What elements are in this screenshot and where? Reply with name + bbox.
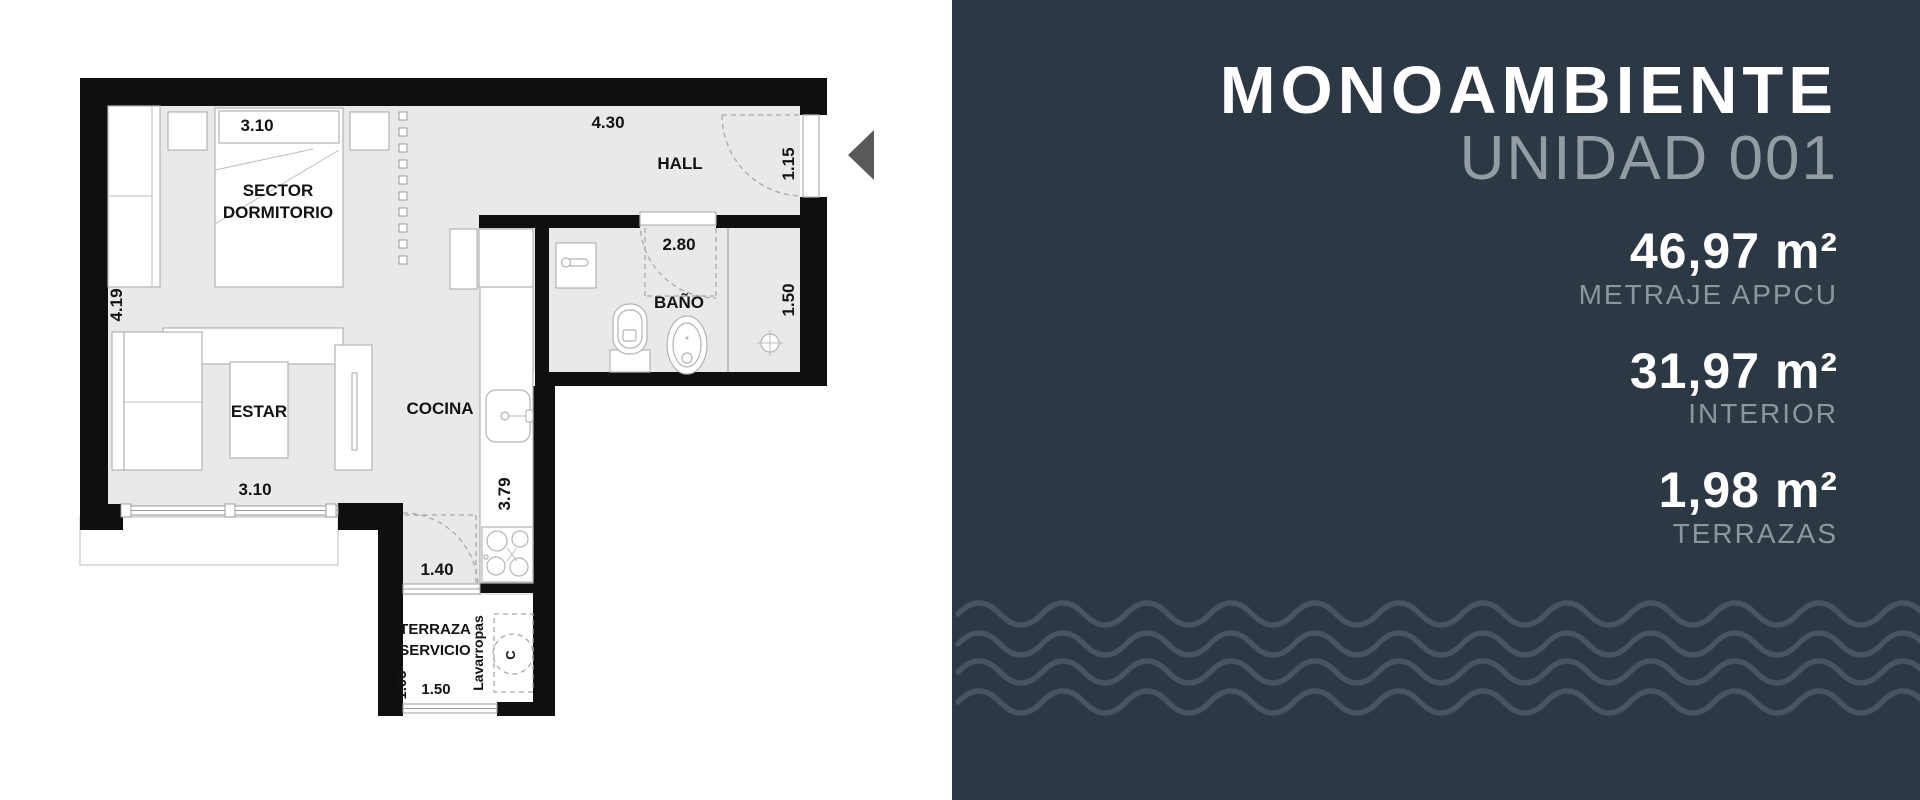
label-terraza-1: TERRAZA (399, 621, 471, 638)
wardrobe (108, 106, 160, 287)
label-bano: BAÑO (654, 292, 704, 312)
dim-dorm-width: 3.10 (240, 116, 273, 135)
wave-decoration (952, 596, 1920, 726)
dim-hall-width: 4.30 (591, 113, 624, 132)
metric-interior-value: 31,97 m² (992, 345, 1838, 398)
label-hall: HALL (657, 154, 702, 173)
dim-estar-width: 3.10 (238, 480, 271, 499)
entry-arrow-icon (848, 130, 874, 180)
metric-terraces-value: 1,98 m² (992, 464, 1838, 517)
dim-entry-door: 1.15 (779, 147, 798, 180)
metric-interior: 31,97 m² INTERIOR (992, 345, 1838, 430)
info-panel: MONOAMBIENTE UNIDAD 001 46,97 m² METRAJE… (952, 0, 1920, 800)
kitchen-sink (486, 390, 533, 442)
label-sector-dormitorio-1: SECTOR (243, 181, 314, 200)
label-terraza-2: SERVICIO (399, 642, 471, 659)
vanity (556, 243, 596, 288)
metric-total-label: METRAJE APPCU (992, 280, 1838, 311)
sofa (112, 332, 202, 470)
toilet (610, 304, 650, 372)
dim-bath-height: 1.50 (779, 283, 798, 316)
dim-left-height: 4.19 (107, 288, 126, 321)
dim-terraza-height: 1.05 (393, 670, 410, 699)
tv-unit (335, 345, 372, 470)
unit-type-title: MONOAMBIENTE (992, 56, 1838, 126)
label-estar: ESTAR (231, 402, 287, 421)
nightstand-right (350, 112, 389, 150)
label-lavarropas: Lavarropas (470, 615, 486, 691)
nightstand-left (168, 112, 207, 150)
metric-total: 46,97 m² METRAJE APPCU (992, 225, 1838, 310)
label-sector-dormitorio-2: DORMITORIO (223, 203, 333, 222)
label-closet-c: C (503, 650, 518, 660)
label-cocina: COCINA (406, 399, 473, 418)
stove (482, 527, 533, 582)
floor-plan: 3.10 4.30 HALL 1.15 SECTOR DORMITORIO 4.… (0, 0, 960, 800)
dim-terraza-width: 1.50 (421, 681, 450, 698)
dim-bath-width: 2.80 (662, 235, 695, 254)
metric-terraces: 1,98 m² TERRAZAS (992, 464, 1838, 549)
metric-total-value: 46,97 m² (992, 225, 1838, 278)
metric-interior-label: INTERIOR (992, 399, 1838, 430)
bidet (667, 316, 707, 374)
dim-service-door: 1.40 (420, 560, 453, 579)
dim-kitchen-height: 3.79 (495, 477, 514, 510)
metric-terraces-label: TERRAZAS (992, 519, 1838, 550)
unit-sheet: 3.10 4.30 HALL 1.15 SECTOR DORMITORIO 4.… (0, 0, 1920, 800)
unit-number-subtitle: UNIDAD 001 (992, 126, 1838, 191)
